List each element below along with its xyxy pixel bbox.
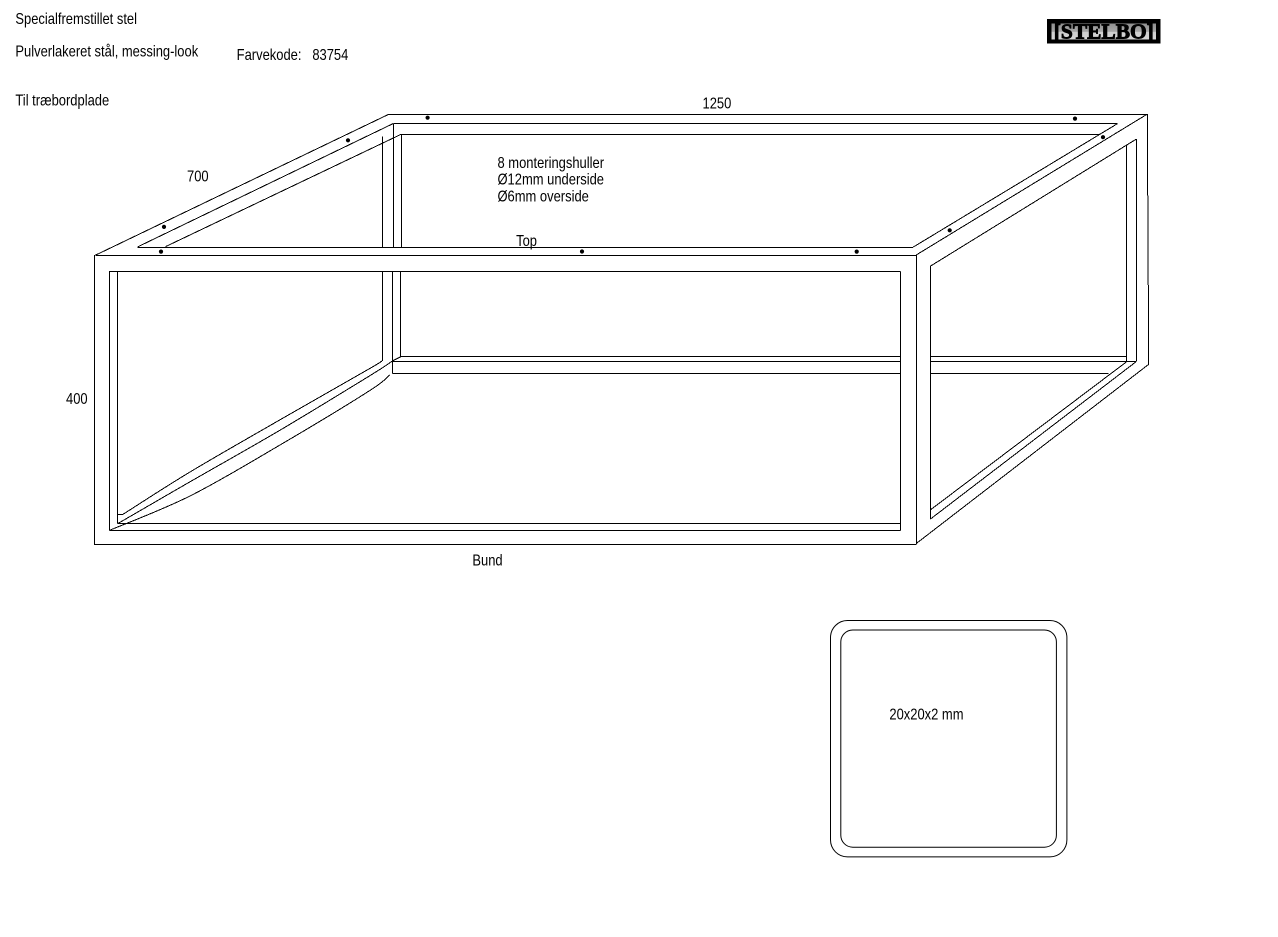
svg-text:Til træbordplade: Til træbordplade (15, 92, 109, 110)
svg-text:Farvekode:: Farvekode: (237, 47, 302, 65)
svg-text:Specialfremstillet stel: Specialfremstillet stel (15, 11, 137, 29)
svg-text:20x20x2 mm: 20x20x2 mm (889, 706, 963, 724)
svg-text:Ø12mm underside: Ø12mm underside (498, 171, 605, 189)
svg-text:8 monteringshuller: 8 monteringshuller (498, 155, 605, 173)
svg-text:Top: Top (516, 233, 537, 251)
svg-text:Bund: Bund (472, 552, 502, 570)
svg-text:Ø6mm overside: Ø6mm overside (498, 188, 589, 206)
svg-text:700: 700 (187, 168, 209, 186)
svg-text:[STELBO]: [STELBO] (1054, 19, 1154, 43)
svg-text:1250: 1250 (703, 95, 732, 113)
svg-text:Pulverlakeret stål, messing-lo: Pulverlakeret stål, messing-look (15, 43, 198, 61)
svg-text:83754: 83754 (312, 47, 348, 65)
svg-text:400: 400 (66, 391, 88, 409)
